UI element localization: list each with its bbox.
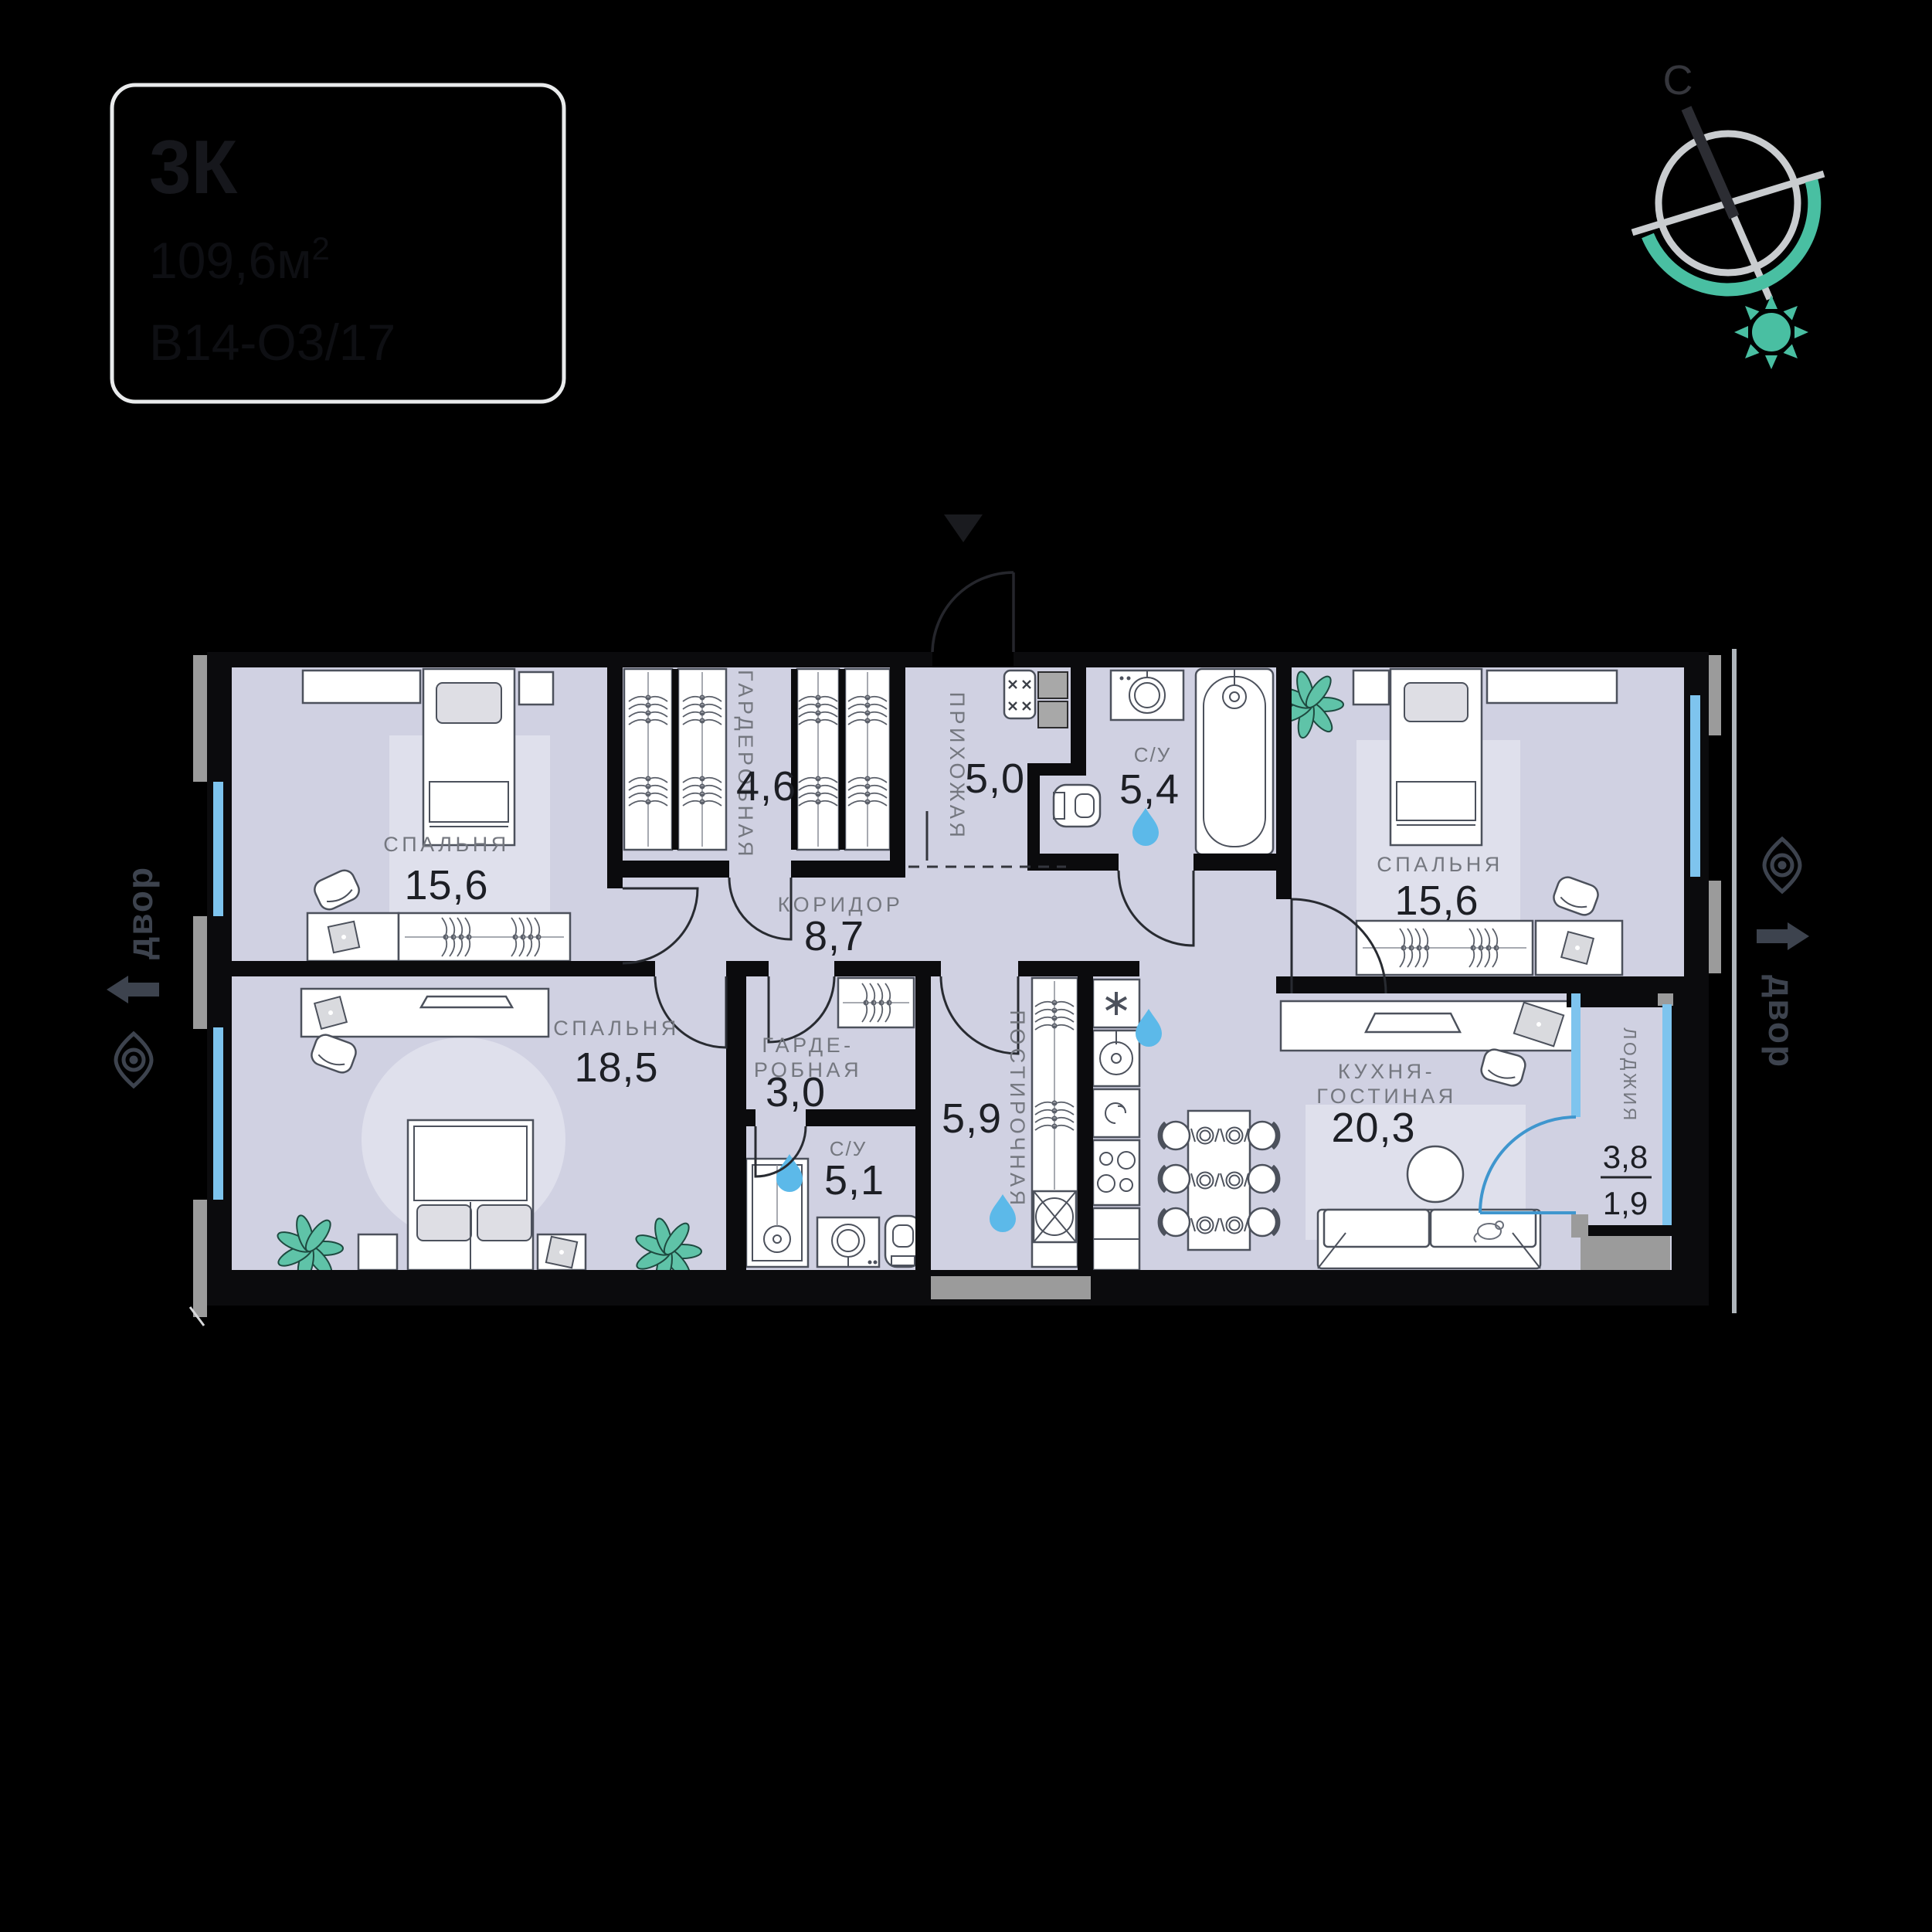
washer-icon — [1034, 1191, 1076, 1242]
bathtub-icon — [1196, 669, 1273, 854]
view-eye-icon — [116, 1034, 151, 1086]
room-area: 4,6 — [736, 763, 796, 810]
room-area: 15,6 — [404, 862, 488, 908]
room-area: 20,3 — [1331, 1105, 1415, 1151]
unit-type: 3К — [149, 124, 238, 209]
room-name: ЛОДЖИЯ — [1620, 1027, 1640, 1122]
courtyard-right: двор — [1757, 839, 1809, 1068]
compass-needle-icon — [1686, 108, 1734, 217]
courtyard-left: двор — [107, 866, 160, 1086]
entrance-arrow-icon — [944, 514, 983, 542]
room-area: 5,0 — [965, 755, 1025, 802]
loggia-slab — [1581, 1236, 1670, 1270]
room-area: 5,4 — [1119, 766, 1180, 813]
room-name: КУХНЯ- — [1338, 1060, 1435, 1083]
oven-icon — [1093, 1089, 1139, 1137]
room-name: СПАЛЬНЯ — [1377, 853, 1502, 876]
facade-line — [1732, 649, 1737, 1313]
balcony-slab — [931, 1276, 1091, 1299]
pouf-icon — [1407, 1146, 1463, 1202]
compass: С — [1632, 57, 1824, 369]
window-icon — [1690, 695, 1700, 877]
view-eye-icon — [1764, 839, 1800, 891]
courtyard-arrow-icon — [1757, 922, 1809, 950]
wardrobe-small-closet — [838, 978, 914, 1027]
room-area: 15,6 — [1394, 878, 1479, 924]
compass-north-label: С — [1663, 57, 1693, 104]
electrical-panel-icon — [1004, 671, 1035, 718]
room-name: СПАЛЬНЯ — [383, 833, 509, 856]
loggia-glazing-icon — [1571, 993, 1581, 1117]
room-area: 18,5 — [574, 1044, 658, 1091]
shaft-icon — [1038, 672, 1068, 698]
room-area: 8,7 — [804, 913, 864, 959]
entrance-door — [932, 514, 1014, 652]
shaft-icon — [1038, 701, 1068, 728]
stove-icon — [1093, 1140, 1139, 1205]
floor-plan-canvas: 3К 109,6м2 В14-О3/17 С двор двор — [0, 0, 1932, 1932]
loggia-area-counted: 1,9 — [1603, 1185, 1648, 1221]
courtyard-arrow-icon — [107, 976, 159, 1003]
courtyard-label: двор — [1761, 975, 1801, 1068]
window-icon — [213, 1027, 223, 1200]
laptop-icon — [1366, 1014, 1460, 1032]
room-name: ПОСТИРОЧНАЯ — [1006, 1010, 1029, 1208]
toilet-icon — [1054, 785, 1100, 827]
room-area: 5,1 — [824, 1157, 885, 1204]
room-name: С/У — [1134, 743, 1172, 766]
loggia-area-total: 3,8 — [1603, 1139, 1648, 1175]
room-name: СПАЛЬНЯ — [553, 1017, 679, 1040]
room-area: 5,9 — [942, 1095, 1002, 1142]
unit-card: 3К 109,6м2 В14-О3/17 — [112, 85, 564, 402]
unit-number: В14-О3/17 — [149, 314, 396, 371]
window-icon — [213, 782, 223, 916]
room-area: 3,0 — [766, 1069, 826, 1115]
sun-icon — [1734, 295, 1808, 369]
unit-area: 109,6м2 — [149, 230, 330, 289]
loggia-glazing-icon — [1662, 1004, 1672, 1225]
room-name: ГАРДЕ- — [762, 1034, 854, 1057]
courtyard-label: двор — [120, 866, 160, 959]
sofa — [1318, 1210, 1540, 1268]
